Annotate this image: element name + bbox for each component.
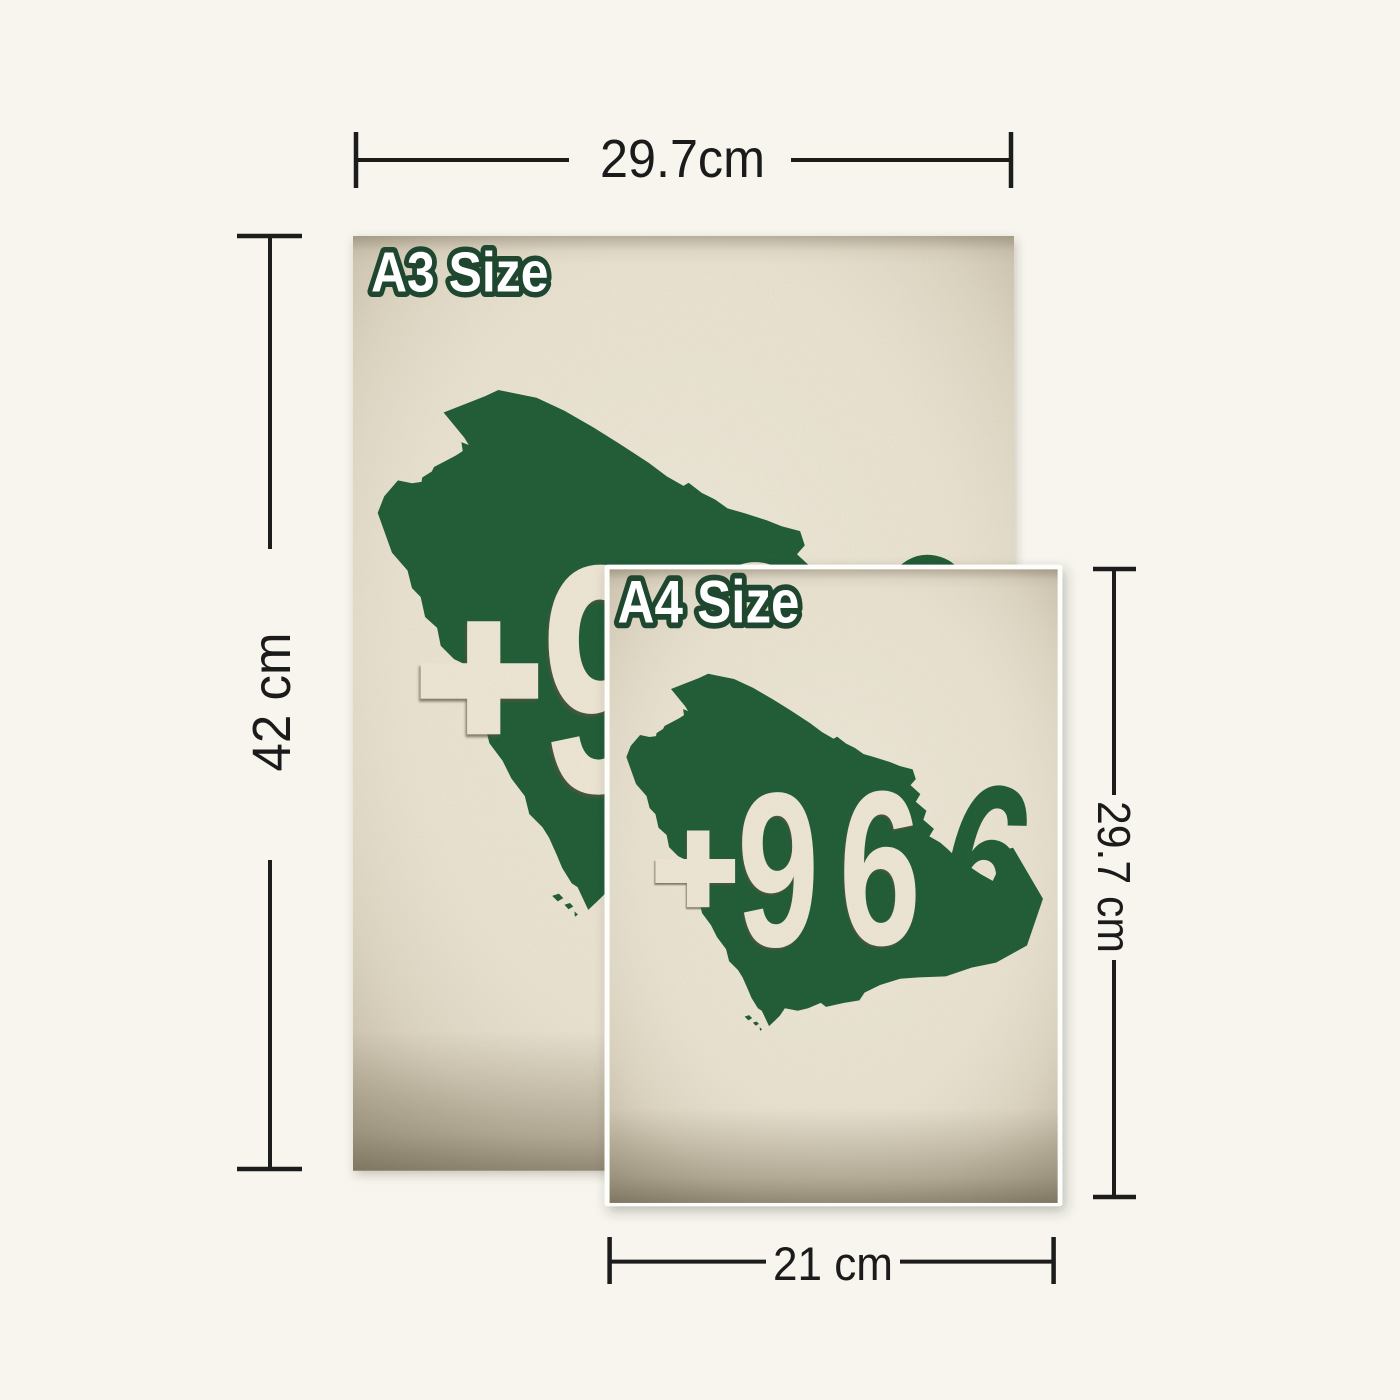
svg-text:29.7 cm: 29.7 cm bbox=[1088, 801, 1140, 953]
svg-text:42 cm: 42 cm bbox=[242, 633, 302, 772]
svg-text:21 cm: 21 cm bbox=[773, 1237, 893, 1290]
svg-text:29.7cm: 29.7cm bbox=[600, 130, 765, 189]
svg-text:A3 Size: A3 Size bbox=[371, 241, 549, 305]
svg-text:A4 Size: A4 Size bbox=[618, 569, 800, 636]
